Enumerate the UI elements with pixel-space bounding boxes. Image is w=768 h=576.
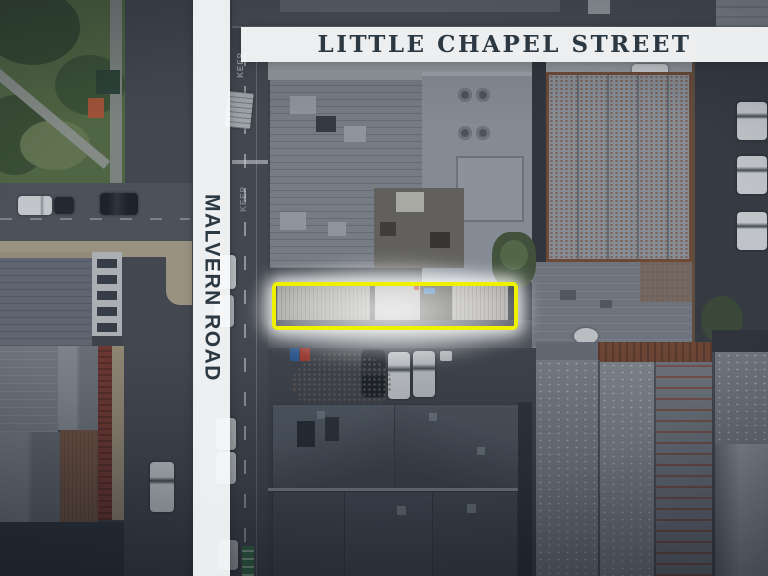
park-playground	[88, 98, 104, 118]
tree-highlight	[500, 240, 528, 270]
courtyard-clutter	[374, 188, 464, 268]
terrace-roof	[272, 404, 396, 492]
laneway-gap-south	[518, 402, 532, 576]
ac-fan	[458, 126, 472, 140]
sidewalk-corner	[166, 241, 192, 305]
roof-vent	[560, 290, 576, 300]
road-centerline	[244, 0, 246, 576]
street-label-band-top: LITTLE CHAPEL STREET	[241, 27, 768, 62]
roof-seam	[577, 75, 579, 259]
gray-roof-mid-right	[532, 262, 692, 348]
rust-sawtooth-roof	[546, 72, 692, 262]
park-bush	[0, 0, 80, 65]
rust-patch	[640, 262, 692, 302]
parked-car-white	[737, 102, 767, 140]
top-building-edge	[280, 0, 560, 12]
gray-roof-left	[0, 346, 58, 432]
stop-line	[232, 160, 268, 164]
window-rows	[97, 256, 117, 332]
top-roof-unit	[588, 0, 610, 14]
rust-roof-top-band	[598, 342, 712, 362]
skylight	[328, 222, 346, 236]
street-label-little-chapel: LITTLE CHAPEL STREET	[318, 31, 692, 58]
ac-fan	[458, 88, 472, 102]
rust-striped-roof	[600, 362, 656, 576]
chimney	[429, 413, 437, 421]
street-label-malvern-road: MALVERN ROAD	[200, 194, 224, 382]
skylight	[280, 212, 306, 230]
white-panel	[396, 192, 424, 212]
blue-gray-roof	[0, 258, 92, 346]
parked-car-white	[737, 212, 767, 250]
chimney	[477, 447, 485, 455]
roof-vent-dark	[325, 417, 339, 441]
roof-seam	[667, 75, 669, 259]
curved-roof-right	[712, 444, 768, 576]
white-car-rear	[388, 352, 410, 399]
roof-seam	[607, 75, 609, 259]
parked-car-white	[737, 156, 767, 194]
terrace-roof	[432, 491, 518, 576]
parking-lot-right	[692, 28, 768, 352]
roof-vent-dark	[297, 421, 315, 447]
white-ute	[150, 462, 174, 512]
roof-plant-box	[456, 156, 524, 222]
roof-seam	[637, 75, 639, 259]
street-label-band-left: MALVERN ROAD	[193, 0, 230, 576]
dark-car	[54, 197, 74, 214]
small-object	[440, 351, 452, 361]
ac-unit	[316, 116, 336, 132]
white-car-rear	[413, 351, 435, 397]
red-awning	[98, 346, 112, 520]
dark-roofs-bottom-left	[0, 522, 124, 576]
tan-wall	[112, 346, 124, 520]
white-van	[18, 196, 52, 215]
dark-clutter	[380, 222, 396, 236]
terrace-roof	[344, 491, 434, 576]
chimney	[467, 504, 476, 513]
dark-suv	[100, 193, 138, 215]
roof-edge-band	[536, 342, 598, 360]
blue-bin	[290, 348, 299, 361]
chimney	[397, 506, 406, 515]
gable-roof-left	[58, 346, 98, 430]
cross-street-laneline	[0, 218, 190, 220]
park-shed	[96, 70, 120, 94]
property-highlight-outline	[272, 282, 518, 330]
road-edge-line	[256, 60, 257, 576]
terrace-roof	[394, 404, 520, 492]
alley-dark	[712, 330, 768, 352]
corrugated-roof-right	[712, 352, 768, 444]
skylight	[344, 126, 366, 142]
skylight	[290, 96, 316, 114]
ac-fan	[476, 126, 490, 140]
aerial-site-map: KEEP KEEP	[0, 0, 768, 576]
rust-striped-roof	[656, 362, 712, 576]
laneway-gap	[532, 28, 546, 280]
rust-striped-roof	[536, 360, 600, 576]
dark-clutter	[430, 232, 450, 248]
road-marking-keep-2: KEEP	[239, 186, 248, 212]
roof-vent	[600, 300, 612, 308]
white-building	[92, 252, 122, 336]
bike-lane-marking	[242, 546, 254, 576]
gable-roof-left-2	[0, 432, 60, 522]
ac-fan	[476, 88, 490, 102]
park	[0, 0, 125, 183]
rust-building-left	[60, 430, 98, 522]
chimney	[317, 411, 325, 419]
terrace-roof	[272, 491, 346, 576]
